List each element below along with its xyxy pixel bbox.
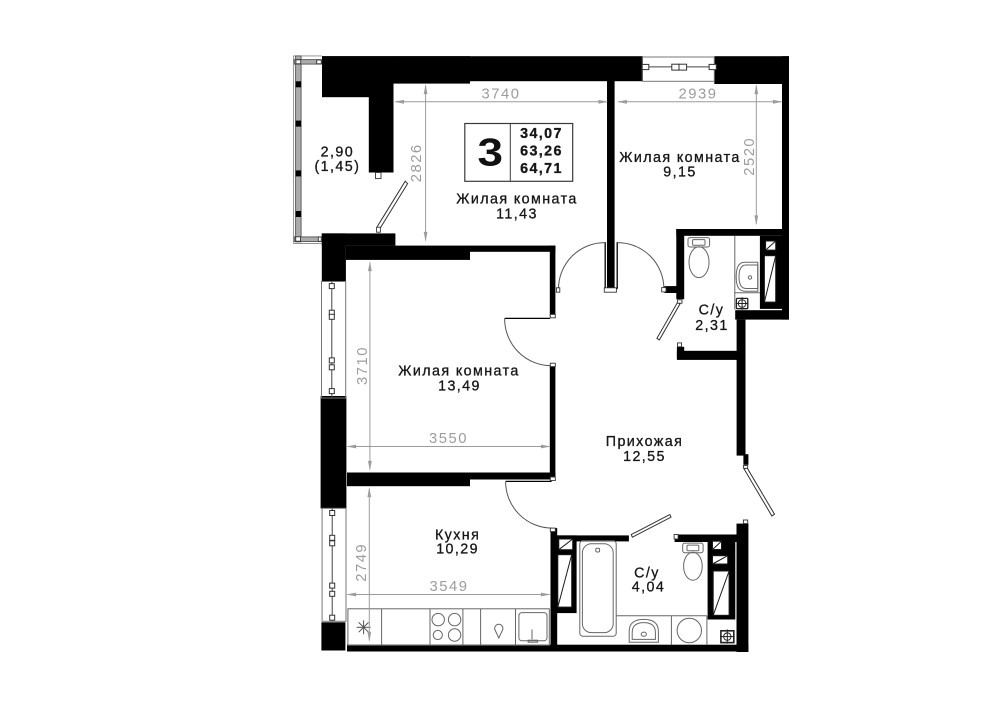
svg-text:Жилая комната: Жилая комната <box>456 191 577 207</box>
svg-text:Жилая комната: Жилая комната <box>398 364 519 380</box>
svg-text:64,71: 64,71 <box>520 161 563 177</box>
svg-text:3740: 3740 <box>482 86 521 102</box>
svg-text:34,07: 34,07 <box>520 126 563 142</box>
svg-text:(1,45): (1,45) <box>315 159 361 175</box>
svg-text:11,43: 11,43 <box>496 206 538 222</box>
svg-text:9,15: 9,15 <box>663 165 696 181</box>
svg-text:3: 3 <box>478 132 504 175</box>
svg-text:2939: 2939 <box>679 86 718 102</box>
svg-text:12,55: 12,55 <box>623 449 666 465</box>
svg-text:13,49: 13,49 <box>438 378 481 394</box>
svg-text:3710: 3710 <box>355 346 371 385</box>
svg-text:Прихожая: Прихожая <box>606 434 683 450</box>
svg-text:4,04: 4,04 <box>632 579 665 595</box>
svg-text:3549: 3549 <box>430 579 469 595</box>
svg-text:2826: 2826 <box>409 143 425 182</box>
svg-text:63,26: 63,26 <box>520 144 563 160</box>
svg-text:2749: 2749 <box>354 543 370 582</box>
svg-text:3550: 3550 <box>429 431 468 447</box>
svg-text:С/у: С/у <box>699 303 725 319</box>
svg-text:10,29: 10,29 <box>436 541 479 557</box>
svg-text:2520: 2520 <box>742 137 758 176</box>
svg-text:2,31: 2,31 <box>695 318 728 334</box>
